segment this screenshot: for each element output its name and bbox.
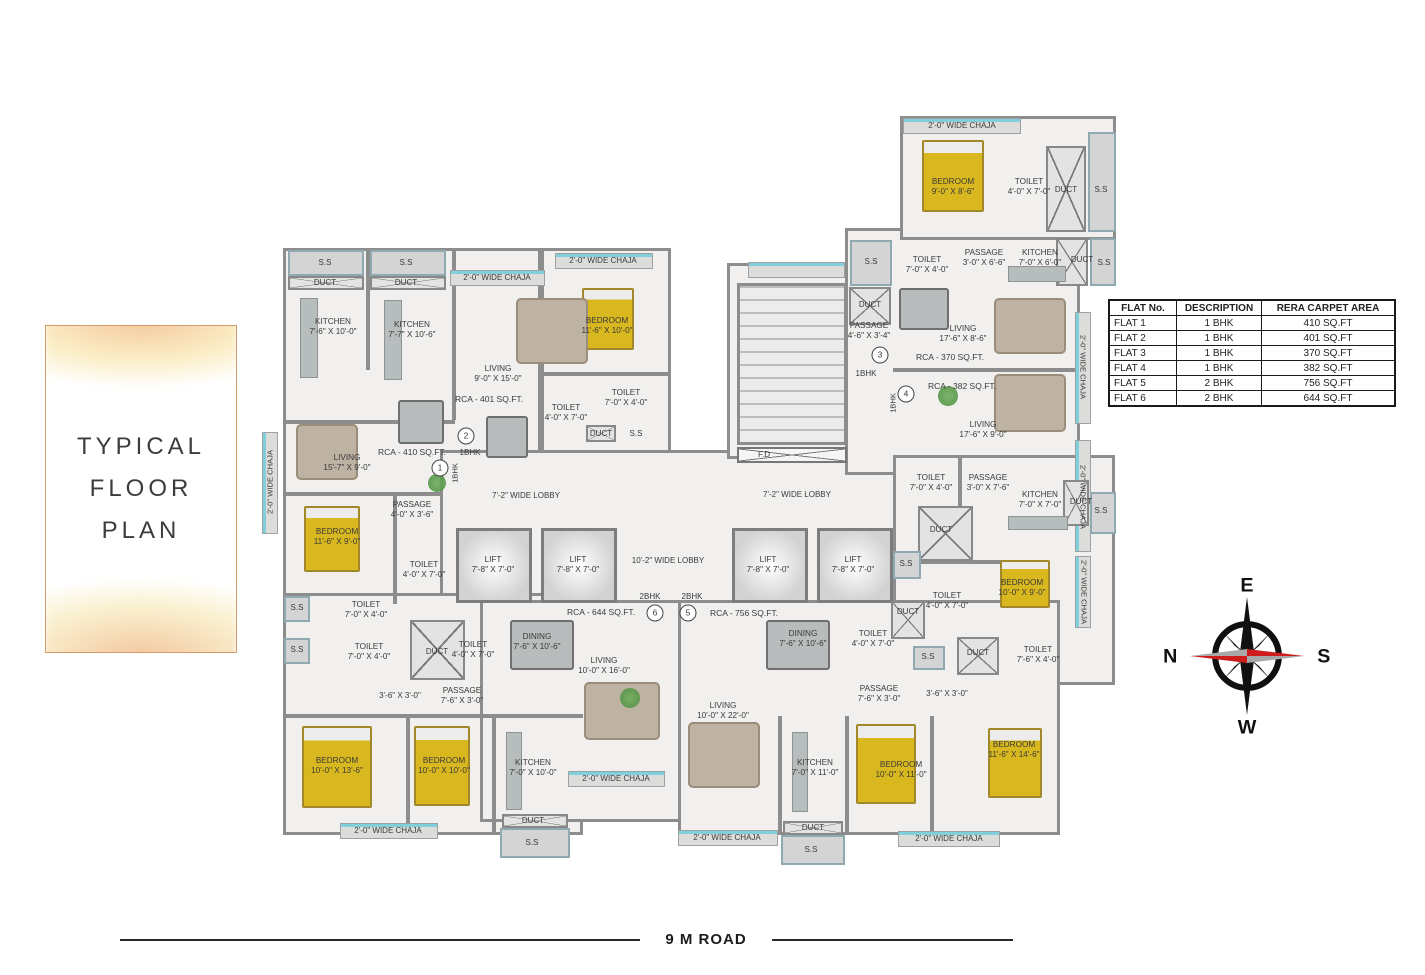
plan-label: S.S [1095,506,1108,516]
stair-shape [737,283,847,445]
plan-label: BEDROOM 11'-6" X 9'-0" [314,527,361,547]
plan-label: S.S [630,429,643,439]
plan-label: BEDROOM 10'-0" X 9'-0" [998,578,1045,598]
table-cell: FLAT 3 [1109,346,1177,361]
plan-label: DINING 7'-6" X 10'-6" [513,632,560,652]
table-header-row: FLAT No.DESCRIPTIONRERA CARPET AREA [1109,300,1395,316]
plan-label: BEDROOM 10'-0" X 13'-6" [311,756,363,776]
flat-number-badge: 5 [680,605,697,622]
plan-label: LIFT 7'-8" X 7'-0" [557,555,600,575]
wall-shape [893,368,1083,372]
table-cell: 2 BHK [1177,391,1262,407]
wall-shape [283,714,583,718]
plan-label: PASSAGE 3'-0" X 7'-6" [967,473,1010,493]
plan-label: KITCHEN 7'-0" X 11'-0" [792,758,839,778]
flat-number-badge: 1 [432,460,449,477]
ss-shape [1088,132,1116,232]
flat-number-badge: 2 [458,428,475,445]
plan-label: KITCHEN 7'-0" X 10'-0" [509,758,556,778]
fd-shape [737,447,847,463]
table-col-header: RERA CARPET AREA [1262,300,1396,316]
table-cell: FLAT 1 [1109,316,1177,331]
plan-label: LIFT 7'-8" X 7'-0" [832,555,875,575]
plan-label: DUCT [590,429,612,439]
wall-shape [541,372,671,376]
table-cell: FLAT 2 [1109,331,1177,346]
plan-label: KITCHEN 7'-6" X 10'-0" [309,317,356,337]
flat-number-badge: 4 [898,386,915,403]
plan-label: 2BHK [682,592,703,602]
plan-label: PASSAGE 3'-0" X 6'-6" [963,248,1006,268]
plan-label: DUCT [930,525,952,535]
plan-label: DUCT [314,278,336,288]
counter-shape [1008,266,1066,282]
road-line-right [772,939,1013,941]
plan-label: TOILET 4'-0" X 7'-0" [852,629,895,649]
flat-area-table: FLAT No.DESCRIPTIONRERA CARPET AREA FLAT… [1108,299,1396,407]
wall-shape [845,716,849,835]
plan-label: F.D [758,450,770,460]
chajah-shape [748,262,845,278]
plan-label: 1BHK [888,393,897,413]
counter-shape [300,298,318,378]
plan-label: DUCT [1071,255,1093,265]
plan-label: DUCT [859,300,881,310]
wall-shape [283,492,443,496]
plan-label: 3'-6" X 3'-0" [379,691,421,701]
plan-label: 2'-0" WIDE CHAJA [928,121,996,131]
plant-shape [428,474,446,492]
table-row: FLAT 52 BHK756 SQ.FT [1109,376,1395,391]
wall-shape [492,716,496,835]
table-cell: 644 SQ.FT [1262,391,1396,407]
table-cell: 1 BHK [1177,361,1262,376]
plan-label: LIVING 10'-0" X 16'-0" [578,656,630,676]
plan-label: BEDROOM 9'-0" X 8'-6" [932,177,975,197]
plan-label: 2'-0" WIDE CHAJA [1078,335,1087,399]
plan-label: PASSAGE 7'-6" X 3'-0" [441,686,484,706]
plan-label: 10'-2" WIDE LOBBY [632,556,704,566]
flat-number-badge: 3 [872,347,889,364]
plan-label: TOILET 4'-0" X 7'-0" [926,591,969,611]
sofa-shape [994,298,1066,354]
wall-shape [930,716,934,835]
plan-label: KITCHEN 7'-0" X 6'-0" [1019,248,1062,268]
table-cell: FLAT 5 [1109,376,1177,391]
plan-label: S.S [922,652,935,662]
plan-label: S.S [805,845,818,855]
sofa-shape [688,722,760,788]
plan-label: LIFT 7'-8" X 7'-0" [472,555,515,575]
plan-label: RCA - 756 SQ.FT. [710,608,778,618]
plan-label: DUCT [522,816,544,826]
plan-label: TOILET 7'-0" X 4'-0" [345,600,388,620]
plan-label: KITCHEN 7'-0" X 7'-0" [1019,490,1062,510]
plan-label: TOILET 7'-6" X 4'-0" [1017,645,1060,665]
table-col-header: FLAT No. [1109,300,1177,316]
plan-label: BEDROOM 10'-0" X 10'-0" [418,756,470,776]
plan-label: KITCHEN 7'-7" X 10'-6" [388,320,435,340]
plan-label: TOILET 4'-0" X 7'-0" [545,403,588,423]
plan-label: DUCT [802,823,824,833]
counter-shape [1008,516,1068,530]
plan-label: 2'-0" WIDE CHAJA [354,826,422,836]
dtable-shape [486,416,528,458]
plan-label: 1BHK [856,369,877,379]
table-cell: 1 BHK [1177,331,1262,346]
plan-label: RCA - 382 SQ.FT. [928,381,996,391]
plan-label: DUCT [426,647,448,657]
plan-label: TOILET 4'-0" X 7'-0" [403,560,446,580]
plan-label: LIVING 15'-7" X 9'-0" [323,453,370,473]
plan-label: RCA - 644 SQ.FT. [567,607,635,617]
plan-label: TOILET 7'-0" X 4'-0" [605,388,648,408]
plan-label: DINING 7'-6" X 10'-6" [779,629,826,649]
table-col-header: DESCRIPTION [1177,300,1262,316]
road-label: 9 M ROAD [665,931,746,948]
plan-label: LIVING 9'-0" X 15'-0" [474,364,521,384]
plan-label: S.S [900,559,913,569]
plan-label: DUCT [967,648,989,658]
plan-label: 2'-0" WIDE CHAJA [582,774,650,784]
plan-label: S.S [1095,185,1108,195]
plan-label: 2'-0" WIDE CHAJA [1079,560,1088,624]
bed-shape [988,728,1042,798]
plan-label: 1BHK [450,463,459,483]
table-cell: 410 SQ.FT [1262,316,1396,331]
plan-label: LIFT 7'-8" X 7'-0" [747,555,790,575]
plan-label: BEDROOM 11'-6" X 10'-0" [581,316,632,336]
plan-label: 7'-2" WIDE LOBBY [763,490,831,500]
table-row: FLAT 41 BHK382 SQ.FT [1109,361,1395,376]
flat-number-badge: 6 [647,605,664,622]
table-row: FLAT 11 BHK410 SQ.FT [1109,316,1395,331]
plan-label: S.S [319,258,332,268]
plan-label: DUCT [395,278,417,288]
plan-label: TOILET 7'-0" X 4'-0" [910,473,953,493]
table-cell: 1 BHK [1177,316,1262,331]
table-cell: FLAT 4 [1109,361,1177,376]
floor-plan: 2'-0" WIDE CHAJABEDROOM 9'-0" X 8'-6"TOI… [0,0,1425,975]
table-row: FLAT 62 BHK644 SQ.FT [1109,391,1395,407]
table-cell: 756 SQ.FT [1262,376,1396,391]
plan-label: PASSAGE 7'-6" X 3'-0" [858,684,901,704]
compass-label-east: E [1240,574,1253,596]
plan-label: DUCT [1055,185,1077,195]
plant-shape [620,688,640,708]
dtable-shape [398,400,444,444]
floor-plan-sheet: TYPICAL FLOOR PLAN 2'-0" WIDE CHAJABEDRO… [0,0,1425,975]
plan-label: S.S [291,603,304,613]
plan-label: S.S [291,645,304,655]
plan-label: RCA - 401 SQ.FT. [455,394,523,404]
table-cell: 382 SQ.FT [1262,361,1396,376]
table-cell: FLAT 6 [1109,391,1177,407]
plan-label: BEDROOM 11'-6" X 14'-6" [988,740,1039,760]
table-cell: 2 BHK [1177,376,1262,391]
plan-label: TOILET 4'-0" X 7'-0" [1008,177,1051,197]
plan-label: 3'-6" X 3'-0" [926,689,968,699]
compass-rose-icon: E S W N [1158,570,1336,742]
plan-label: 1BHK [460,448,481,458]
road-line-left [120,939,640,941]
plan-label: 2'-0" WIDE CHAJA [693,833,761,843]
plan-label: DUCT [1070,497,1092,507]
table-row: FLAT 31 BHK370 SQ.FT [1109,346,1395,361]
plan-label: S.S [400,258,413,268]
plan-label: RCA - 410 SQ.FT. [378,447,446,457]
plan-label: S.S [865,257,878,267]
plan-label: TOILET 7'-0" X 4'-0" [348,642,391,662]
plan-label: BEDROOM 10'-0" X 11'-0" [875,760,926,780]
table-cell: 1 BHK [1177,346,1262,361]
plan-label: 2'-0" WIDE CHAJA [265,450,274,514]
plan-label: 2'-0" WIDE CHAJA [463,273,531,283]
plan-label: PASSAGE 4'-6" X 3'-4" [848,321,891,341]
plan-label: TOILET 7'-0" X 4'-0" [906,255,949,275]
compass-label-west: W [1238,717,1257,739]
plan-label: 7'-2" WIDE LOBBY [492,491,560,501]
plan-label: TOILET 4'-0" X 7'-0" [452,640,495,660]
bed-shape [922,140,984,212]
plan-label: LIVING 17'-6" X 8'-6" [939,324,986,344]
compass-label-north: N [1163,646,1177,668]
plan-label: S.S [526,838,539,848]
table-cell: 401 SQ.FT [1262,331,1396,346]
plan-label: DUCT [897,607,919,617]
plan-label: PASSAGE 4'-0" X 3'-6" [391,500,434,520]
table-row: FLAT 21 BHK401 SQ.FT [1109,331,1395,346]
compass-label-south: S [1317,646,1330,668]
plan-label: 2BHK [640,592,661,602]
plan-label: 2'-0" WIDE CHAJA [915,834,983,844]
counter-shape [384,300,402,380]
sofa-shape [516,298,588,364]
plan-label: LIVING 17'-6" X 9'-0" [959,420,1006,440]
wall-shape [778,716,782,835]
table-cell: 370 SQ.FT [1262,346,1396,361]
wall-shape [406,716,410,835]
plan-label: LIVING 10'-0" X 22'-0" [697,701,749,721]
plan-label: 2'-0" WIDE CHAJA [569,256,637,266]
plan-label: RCA - 370 SQ.FT. [916,352,984,362]
plan-label: S.S [1098,258,1111,268]
